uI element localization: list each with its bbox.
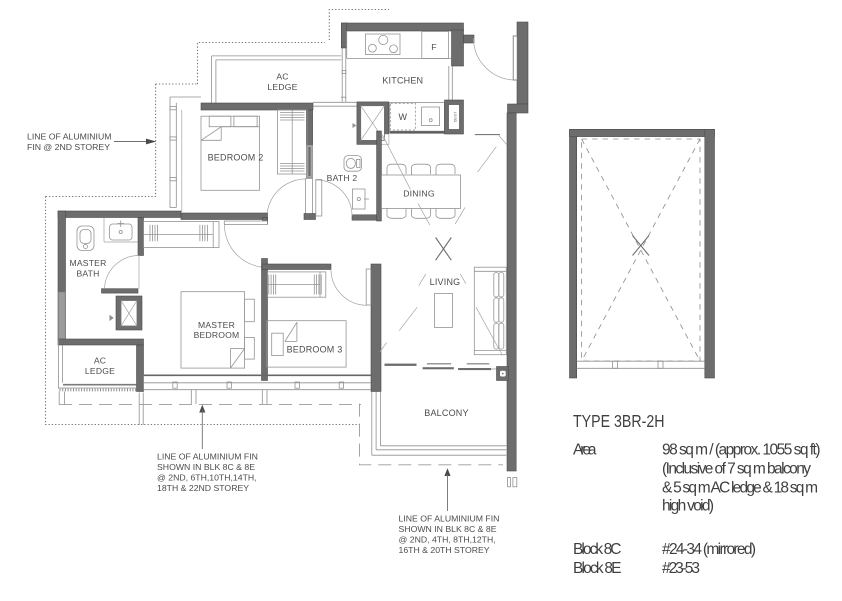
svg-text:SHOWN IN BLK 8C & 8E: SHOWN IN BLK 8C & 8E: [157, 462, 255, 472]
svg-text:98 sq m / (approx. 1055 sq ft): 98 sq m / (approx. 1055 sq ft): [662, 442, 821, 459]
svg-text:@ 2ND, 6TH,10TH,14TH,: @ 2ND, 6TH,10TH,14TH,: [157, 473, 257, 483]
svg-text:18TH & 22ND STOREY: 18TH & 22ND STOREY: [157, 483, 249, 493]
svg-text:& 5 sq m AC ledge & 18 sq m: & 5 sq m AC ledge & 18 sq m: [662, 479, 818, 496]
svg-text:MASTER: MASTER: [198, 320, 235, 330]
svg-text:KITCHEN: KITCHEN: [382, 76, 423, 86]
svg-text:@ 2ND, 4TH, 8TH,12TH,: @ 2ND, 4TH, 8TH,12TH,: [399, 535, 496, 545]
svg-text:DB/ST: DB/ST: [454, 111, 458, 122]
svg-text:SHOWN IN BLK 8C & 8E: SHOWN IN BLK 8C & 8E: [399, 524, 497, 534]
svg-text:BATH 2: BATH 2: [327, 173, 358, 183]
svg-text:#23-53: #23-53: [662, 560, 700, 577]
svg-text:LINE OF ALUMINIUM FIN: LINE OF ALUMINIUM FIN: [399, 514, 500, 524]
svg-text:LIVING: LIVING: [430, 277, 461, 287]
svg-text:Area: Area: [573, 442, 597, 459]
svg-text:BEDROOM 3: BEDROOM 3: [287, 345, 343, 355]
svg-text:AC: AC: [276, 72, 288, 82]
svg-text:BATH: BATH: [76, 269, 99, 279]
svg-text:LEDGE: LEDGE: [85, 366, 115, 376]
svg-text:16TH & 20TH STOREY: 16TH & 20TH STOREY: [399, 545, 490, 555]
svg-text:LEDGE: LEDGE: [267, 82, 297, 92]
svg-text:BEDROOM 2: BEDROOM 2: [208, 153, 264, 163]
svg-text:BALCONY: BALCONY: [424, 408, 468, 418]
svg-text:MASTER: MASTER: [69, 258, 106, 268]
svg-text:DINING: DINING: [403, 188, 435, 198]
svg-text:AC: AC: [94, 356, 106, 366]
svg-text:FIN @ 2ND STOREY: FIN @ 2ND STOREY: [27, 142, 110, 152]
svg-text:Block 8E: Block 8E: [573, 560, 622, 577]
svg-text:(Inclusive of 7 sq m balcony: (Inclusive of 7 sq m balcony: [662, 461, 811, 478]
svg-text:LINE OF ALUMINIUM FIN: LINE OF ALUMINIUM FIN: [157, 452, 258, 462]
svg-text:BEDROOM: BEDROOM: [194, 330, 240, 340]
svg-text:LINE OF ALUMINIUM: LINE OF ALUMINIUM: [27, 132, 111, 142]
svg-text:#24-34 (mirrored): #24-34 (mirrored): [662, 541, 756, 558]
svg-text:Block 8C: Block 8C: [573, 541, 622, 558]
svg-text:TYPE 3BR-2H: TYPE 3BR-2H: [573, 411, 665, 431]
svg-text:W: W: [398, 112, 407, 122]
svg-text:high void): high void): [662, 497, 714, 514]
svg-text:F: F: [431, 42, 436, 52]
